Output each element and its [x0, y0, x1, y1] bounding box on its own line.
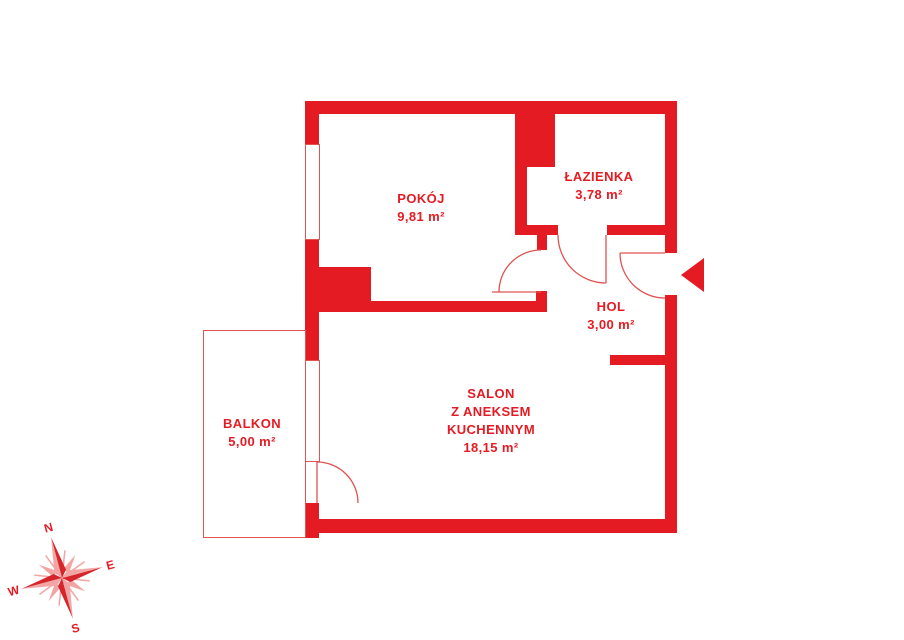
compass-west-label: W	[6, 583, 21, 600]
room-name: BALKON	[223, 415, 281, 433]
room-area: 5,00 m²	[223, 433, 281, 451]
pokoj-door-arc-icon	[499, 250, 541, 292]
plan-linework: N E S W	[0, 0, 904, 640]
compass-east-label: E	[105, 557, 116, 573]
room-name: HOL	[587, 298, 635, 316]
room-label-pokoj: POKÓJ 9,81 m²	[397, 190, 445, 226]
entrance-arrow-icon	[681, 258, 704, 292]
balcony-door-arc-icon	[317, 462, 358, 503]
room-name: SALON	[447, 385, 535, 403]
entrance-door-arc-icon	[620, 253, 665, 298]
room-label-balkon: BALKON 5,00 m²	[223, 415, 281, 451]
lazienka-door-arc-icon	[558, 235, 606, 283]
floor-plan: N E S W POKÓJ 9,81 m² ŁAZIENKA 3,78 m² H…	[0, 0, 904, 640]
room-label-lazienka: ŁAZIENKA 3,78 m²	[565, 168, 634, 204]
room-name: POKÓJ	[397, 190, 445, 208]
room-area: 18,15 m²	[447, 439, 535, 457]
compass-north-label: N	[43, 520, 55, 536]
room-area: 3,78 m²	[565, 186, 634, 204]
room-name: KUCHENNYM	[447, 421, 535, 439]
room-area: 3,00 m²	[587, 316, 635, 334]
room-name: Z ANEKSEM	[447, 403, 535, 421]
room-label-salon: SALON Z ANEKSEM KUCHENNYM 18,15 m²	[447, 385, 535, 457]
room-name: ŁAZIENKA	[565, 168, 634, 186]
room-area: 9,81 m²	[397, 208, 445, 226]
room-label-hol: HOL 3,00 m²	[587, 298, 635, 334]
compass-rose-icon: N E S W	[0, 507, 129, 640]
compass-south-label: S	[70, 620, 81, 636]
